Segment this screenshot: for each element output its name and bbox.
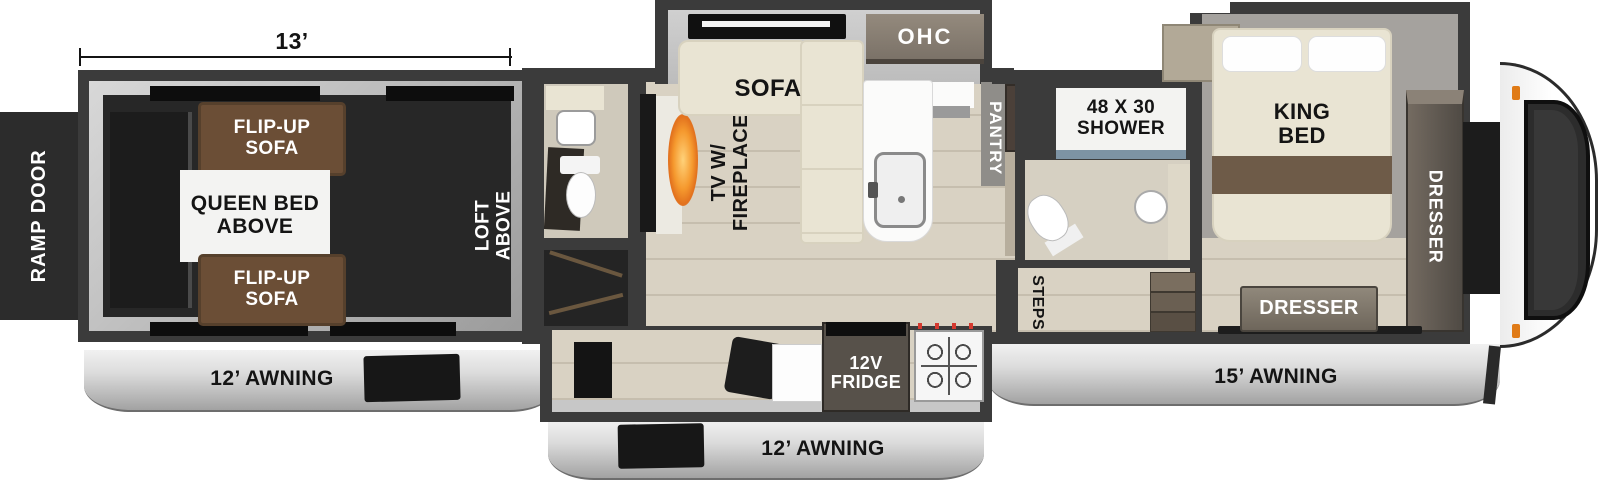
steps [1150, 312, 1196, 332]
garage-window [330, 322, 456, 336]
garage-awning-step [363, 354, 460, 402]
kitchen-sink-faucet [868, 182, 878, 198]
ramp-door: RAMP DOOR [0, 112, 80, 320]
kitchen-awning-step [618, 423, 705, 468]
bath-vanity [1168, 164, 1192, 260]
queen-bed-above: QUEEN BED ABOVE [180, 170, 330, 262]
steps-side-wall [996, 260, 1018, 344]
fireplace-flame-icon [668, 114, 698, 206]
dresser-wardrobe-label: DRESSER [1425, 170, 1444, 264]
dimension-tick-right [509, 48, 511, 66]
king-bed-runner [1212, 156, 1392, 194]
pillow [1308, 36, 1386, 72]
kitchen-sink [874, 152, 926, 228]
dresser-foot: DRESSER [1240, 286, 1378, 332]
stove-burners [921, 337, 977, 395]
rear-bath-counter [546, 86, 604, 110]
sectional-sofa-long [800, 40, 864, 244]
kitchen-awning-label: 12’ AWNING [743, 438, 903, 461]
main-awning-label: 15’ AWNING [1196, 366, 1356, 389]
pantry-label: PANTRY [986, 101, 1004, 175]
flip-up-sofa-top: FLIP-UP SOFA [198, 102, 346, 176]
flip-up-sofa-bottom: FLIP-UP SOFA [198, 254, 346, 326]
marker-light [1512, 324, 1520, 338]
kitchen-counter-ext [930, 82, 974, 108]
ramp-door-label: RAMP DOOR [29, 149, 51, 282]
bath-sink [1134, 190, 1168, 224]
ohc-label: OHC [898, 25, 953, 49]
pantry-label-wrap: PANTRY [976, 96, 1014, 180]
shower-label: 48 X 30 SHOWER [1058, 98, 1184, 139]
flip-up-sofa-bottom-label: FLIP-UP SOFA [234, 269, 311, 310]
rv-floorplan: 13’ 12’ AWNING 12’ AWNING 15’ AWNING RAM… [0, 0, 1600, 499]
fridge-label: 12V FRIDGE [831, 354, 901, 393]
steps [1150, 292, 1196, 312]
kitchen-appliance [930, 106, 970, 118]
tv-panel [640, 94, 656, 232]
windshield-glass [1534, 110, 1578, 310]
stove [914, 330, 984, 402]
tv-fireplace-label-wrap: TV W/ FIREPLACE [695, 98, 765, 248]
fridge-top [826, 322, 906, 336]
loft-above-label: LOFT ABOVE [473, 191, 514, 261]
flip-up-sofa-top-label: FLIP-UP SOFA [234, 118, 311, 159]
pillow [1222, 36, 1302, 72]
windshield [1524, 100, 1590, 320]
dimension-line [80, 56, 512, 58]
steps-label-wrap: STEPS [1018, 263, 1056, 343]
ohc-cabinet: OHC [866, 14, 984, 64]
bedroom-wall-notch [1186, 0, 1230, 13]
shower-glass [1056, 150, 1186, 159]
steps-label: STEPS [1028, 276, 1045, 331]
dresser-wardrobe: DRESSER [1406, 90, 1464, 332]
desk-table [772, 344, 822, 402]
stove-burner-flames [918, 323, 982, 329]
slideout-window-glass [702, 21, 830, 27]
garage-window [386, 86, 514, 101]
queen-bed-above-label: QUEEN BED ABOVE [191, 193, 319, 238]
kitchen-slideout-window [574, 342, 612, 398]
sofa-label: SOFA [718, 76, 818, 102]
garage-window [150, 86, 320, 101]
steps [1150, 272, 1196, 292]
king-bed-label: KING BED [1242, 100, 1362, 148]
dimension-label: 13’ [252, 29, 332, 53]
kitchen-sink-drain [898, 196, 905, 203]
rear-bath-sink [556, 110, 596, 146]
tv-fireplace-label: TV W/ FIREPLACE [708, 115, 751, 232]
dresser-foot-label: DRESSER [1259, 298, 1359, 320]
dimension-tick-left [79, 48, 81, 66]
rear-bath-toilet [566, 172, 596, 218]
garage-awning-label: 12’ AWNING [192, 368, 352, 391]
marker-light [1512, 86, 1520, 100]
